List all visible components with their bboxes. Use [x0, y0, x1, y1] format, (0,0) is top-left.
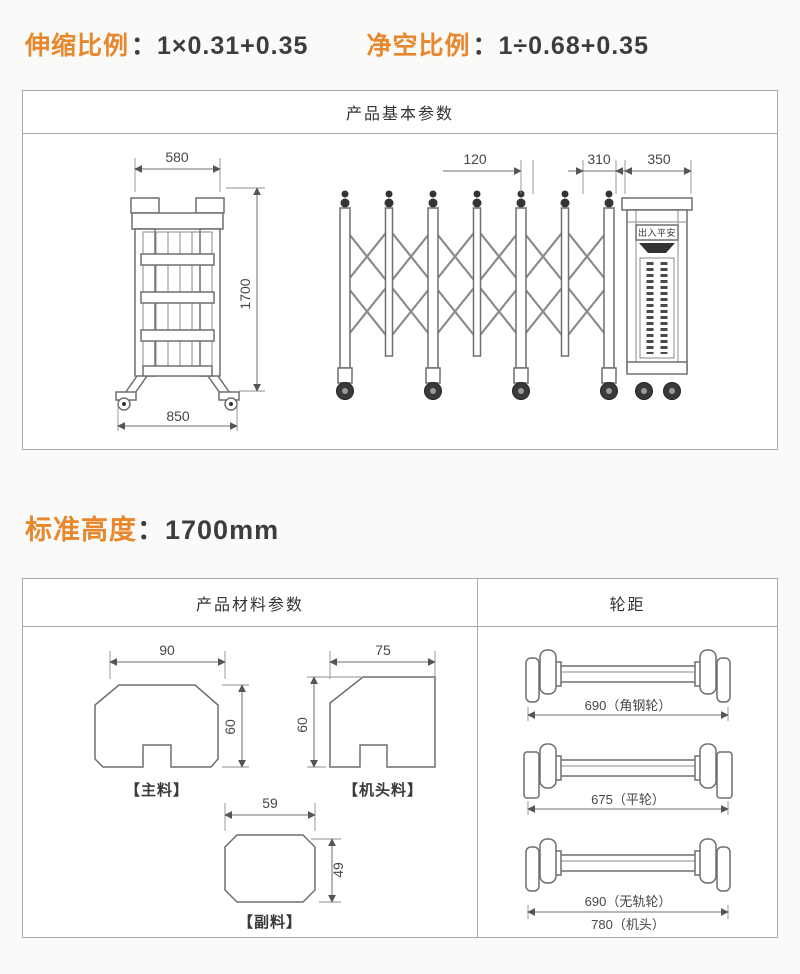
head-unit-drawing: 出入平安 [622, 198, 692, 400]
head-profile-label: 【机头料】 [343, 781, 423, 799]
material-profiles-drawing: 90 60 【主料】 75 [23, 627, 477, 938]
folded-gate-drawing: 580 [116, 149, 265, 431]
extended-gate-dimensions: 120 310 350 [443, 151, 691, 194]
basic-params-title: 产品基本参数 [23, 91, 777, 134]
wheelbase-drawing: 690（角钢轮） 67 [478, 627, 776, 938]
wheelbase-column: 690（角钢轮） 67 [478, 627, 777, 938]
clear-ratio-label: 净空比例 [366, 32, 470, 60]
sub-profile-drawing: 59 49 【副料】 [225, 795, 346, 931]
wheelbase-row-trackless: 690（无轨轮） 780（机头） [526, 839, 730, 932]
wheelbase-title: 轮距 [478, 579, 777, 626]
dim-sub-width: 59 [262, 795, 278, 811]
wheelbase-label-corner-steel: 690（角钢轮） [585, 698, 672, 713]
dim-head-profile-height: 60 [294, 717, 310, 733]
material-params-title: 产品材料参数 [23, 579, 478, 626]
gate-technical-drawing: 580 [23, 134, 777, 449]
clear-ratio-value: ：1÷0.68+0.35 [472, 32, 649, 60]
wheelbase-row-flat: 675（平轮） [524, 744, 732, 815]
dim-sub-height: 49 [330, 862, 346, 878]
dim-post-gap: 120 [463, 151, 487, 167]
wheelbase-label-flat: 675（平轮） [591, 792, 665, 807]
ratio-row: 伸缩比例：1×0.31+0.35 净空比例：1÷0.68+0.35 [25, 24, 775, 64]
head-profile-drawing: 75 60 【机头料】 [294, 642, 435, 799]
standard-height-value: ：1700mm [137, 515, 279, 545]
main-profile-label: 【主料】 [125, 781, 189, 799]
main-profile-drawing: 90 60 【主料】 [95, 642, 249, 799]
dim-folded-base: 850 [166, 408, 190, 424]
clear-ratio: 净空比例：1÷0.68+0.35 [366, 26, 649, 62]
wheelbase-row-corner-steel: 690（角钢轮） [526, 650, 730, 721]
head-sign-text: 出入平安 [638, 227, 676, 238]
basic-params-panel: 产品基本参数 580 [22, 90, 778, 450]
stretch-ratio: 伸缩比例：1×0.31+0.35 [25, 26, 308, 62]
dim-main-width: 90 [159, 642, 175, 658]
standard-height-label: 标准高度 [25, 515, 137, 545]
standard-height-line: 标准高度：1700mm [25, 508, 279, 547]
stretch-ratio-value: ：1×0.31+0.35 [131, 32, 308, 60]
stretch-ratio-label: 伸缩比例 [25, 32, 129, 60]
material-params-panel: 产品材料参数 轮距 90 [22, 578, 778, 938]
sub-profile-label: 【副料】 [238, 913, 302, 931]
dim-tail-gap: 310 [587, 151, 611, 167]
wheelbase-label-head: 780（机头） [591, 917, 665, 932]
spec-sheet-page: 伸缩比例：1×0.31+0.35 净空比例：1÷0.68+0.35 产品基本参数… [0, 0, 800, 974]
dim-gate-height: 1700 [237, 278, 253, 309]
material-profiles-column: 90 60 【主料】 75 [23, 627, 478, 938]
dim-head-profile-width: 75 [375, 642, 391, 658]
dim-main-height: 60 [222, 719, 238, 735]
extended-gate-drawing: 出入平安 120 [337, 151, 693, 400]
gate-secondary-posts [385, 191, 570, 357]
wheelbase-label-trackless: 690（无轨轮） [585, 894, 672, 909]
dim-folded-width: 580 [165, 149, 189, 165]
dim-head-width: 350 [647, 151, 671, 167]
material-panel-header: 产品材料参数 轮距 [23, 579, 777, 627]
